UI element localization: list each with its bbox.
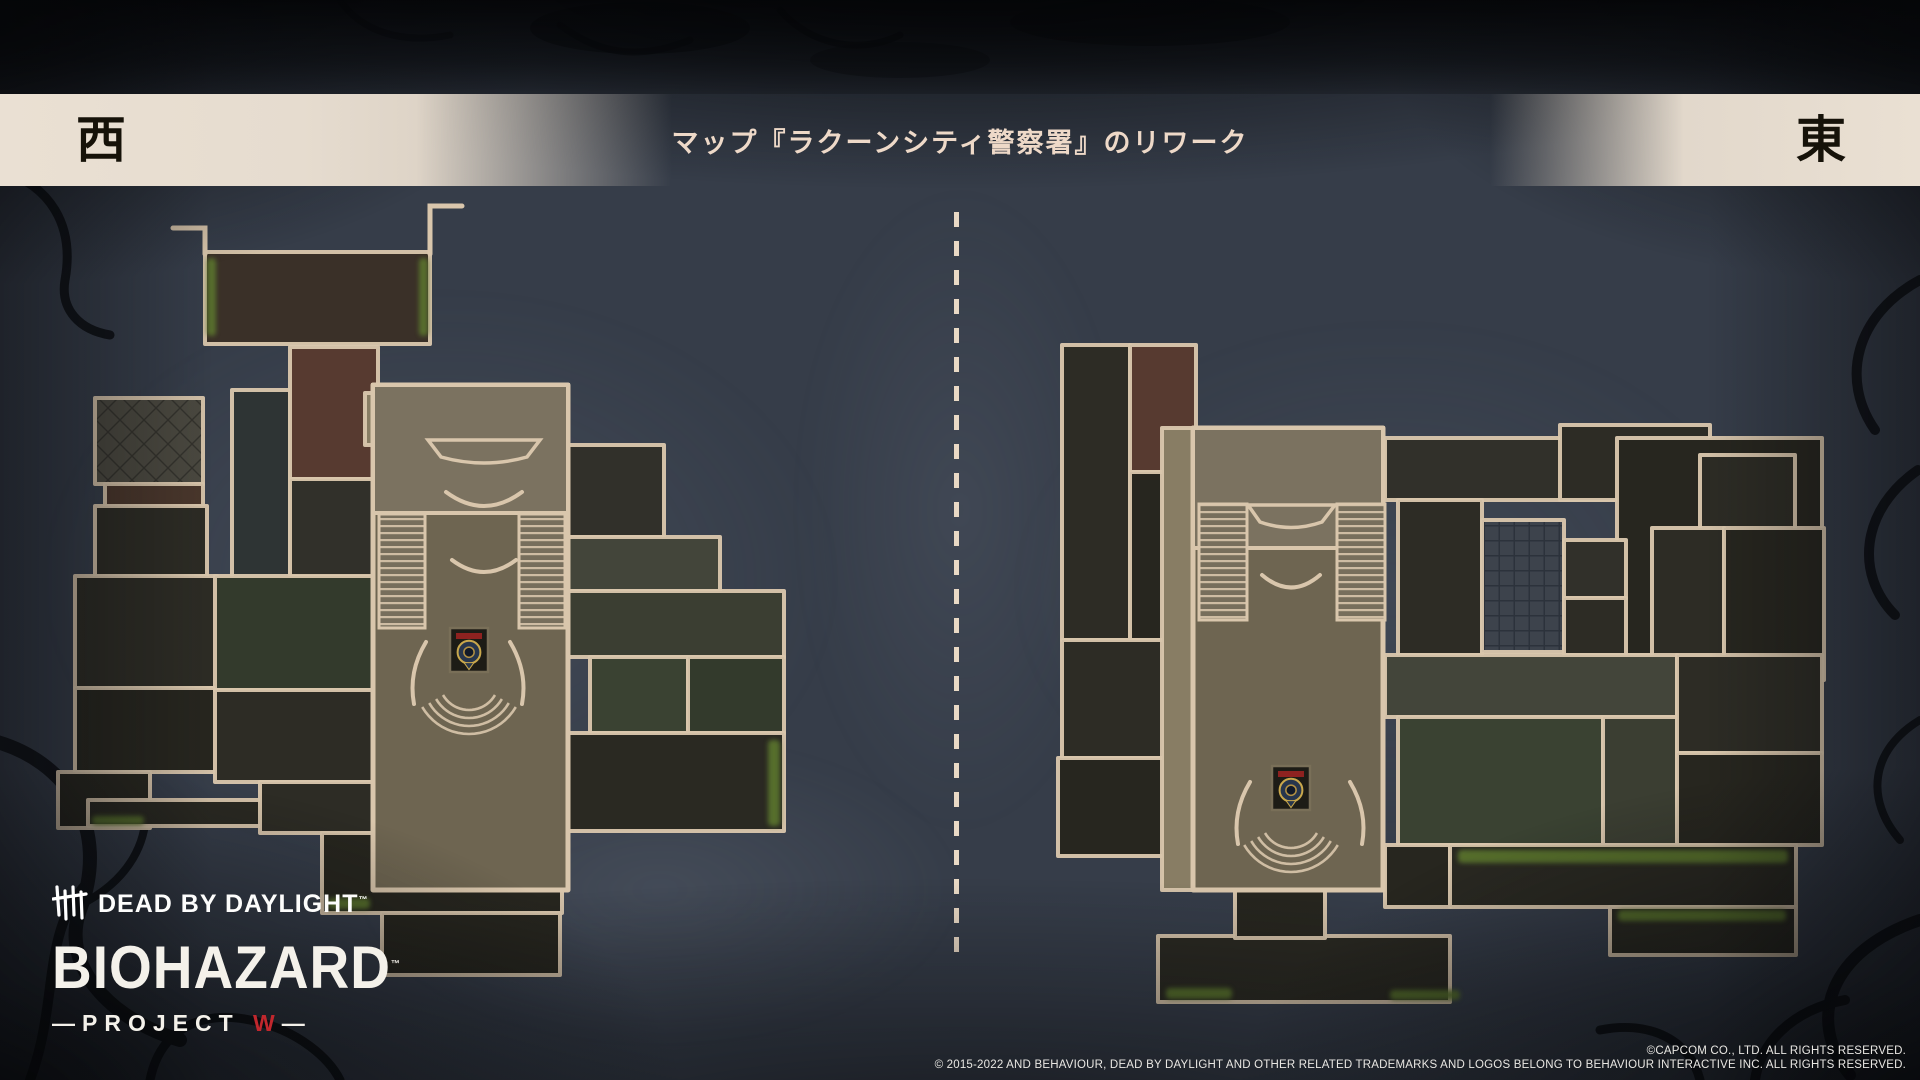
west-map-floorplan	[58, 206, 784, 975]
trademark-symbol: ™	[358, 894, 368, 904]
divider-dashed-line	[954, 212, 959, 964]
east-map-floorplan	[1058, 345, 1824, 1002]
dead-by-daylight-wordmark: DEAD BY DAYLIGHT™	[98, 890, 368, 919]
project-w-wordmark: —PROJECT W—	[52, 1010, 401, 1037]
page-title: マップ『ラクーンシティ警察署』のリワーク	[0, 94, 1920, 186]
logo-block: DEAD BY DAYLIGHT™ BIOHAZARD™ —PROJECT W—	[52, 884, 401, 1037]
dbd-hooks-icon	[52, 884, 88, 924]
copyright-line-capcom: ©CAPCOM CO., LTD. ALL RIGHTS RESERVED.	[935, 1044, 1906, 1058]
biohazard-wordmark: BIOHAZARD™	[52, 932, 401, 1002]
trademark-symbol: ™	[391, 958, 401, 969]
copyright-line-behaviour: © 2015-2022 AND BEHAVIOUR, DEAD BY DAYLI…	[935, 1058, 1906, 1072]
copyright-block: ©CAPCOM CO., LTD. ALL RIGHTS RESERVED. ©…	[935, 1044, 1906, 1072]
project-w-letter: W	[253, 1010, 282, 1036]
